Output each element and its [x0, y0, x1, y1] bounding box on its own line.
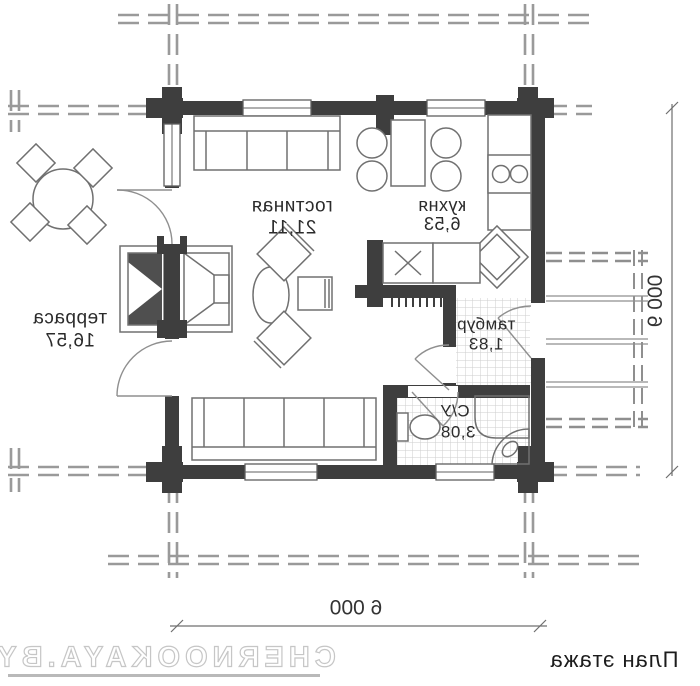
living-room-sofa-top: [194, 116, 340, 170]
dimension-line-bottom: [170, 620, 547, 632]
side-armchair-square: [298, 277, 332, 310]
terrace-area: 16,57: [45, 332, 95, 351]
bathroom-area: 3,08: [440, 424, 475, 441]
dimension-bottom-value: 6 000: [330, 598, 383, 619]
terrace-table-set: [11, 144, 112, 244]
living-room-area: 21,11: [268, 219, 317, 238]
stove: [488, 155, 531, 193]
floor-plan-drawing: [0, 0, 700, 686]
radiator-hatch: [392, 298, 448, 307]
kitchen-counter-bottom: [383, 243, 480, 283]
vestibule-area: 1,83: [468, 336, 503, 353]
kitchen-area: 6,53: [423, 215, 460, 233]
watermark: CHERNOOKAYA.BY: [0, 644, 336, 673]
bathroom-label: С/У: [440, 403, 469, 420]
toilet: [397, 413, 440, 441]
kitchen-label: кухня: [418, 196, 466, 214]
living-room-sofa-bottom: [192, 398, 376, 460]
dimension-line-right: [666, 102, 678, 478]
entrance-stairs: [546, 250, 648, 430]
living-room-label: гостиная: [251, 197, 332, 216]
kitchen-table: [357, 120, 461, 191]
vestibule-label: тамбур: [457, 316, 516, 333]
sheet-title: План этажа: [550, 649, 679, 671]
floor-plan-canvas: гостиная 21,11 кухня 6,53 терраса 16,57 …: [0, 0, 700, 686]
terrace-label: терраса: [33, 309, 107, 328]
dimension-right-value: 6 000: [644, 275, 665, 328]
watermark-underline: [8, 674, 320, 677]
